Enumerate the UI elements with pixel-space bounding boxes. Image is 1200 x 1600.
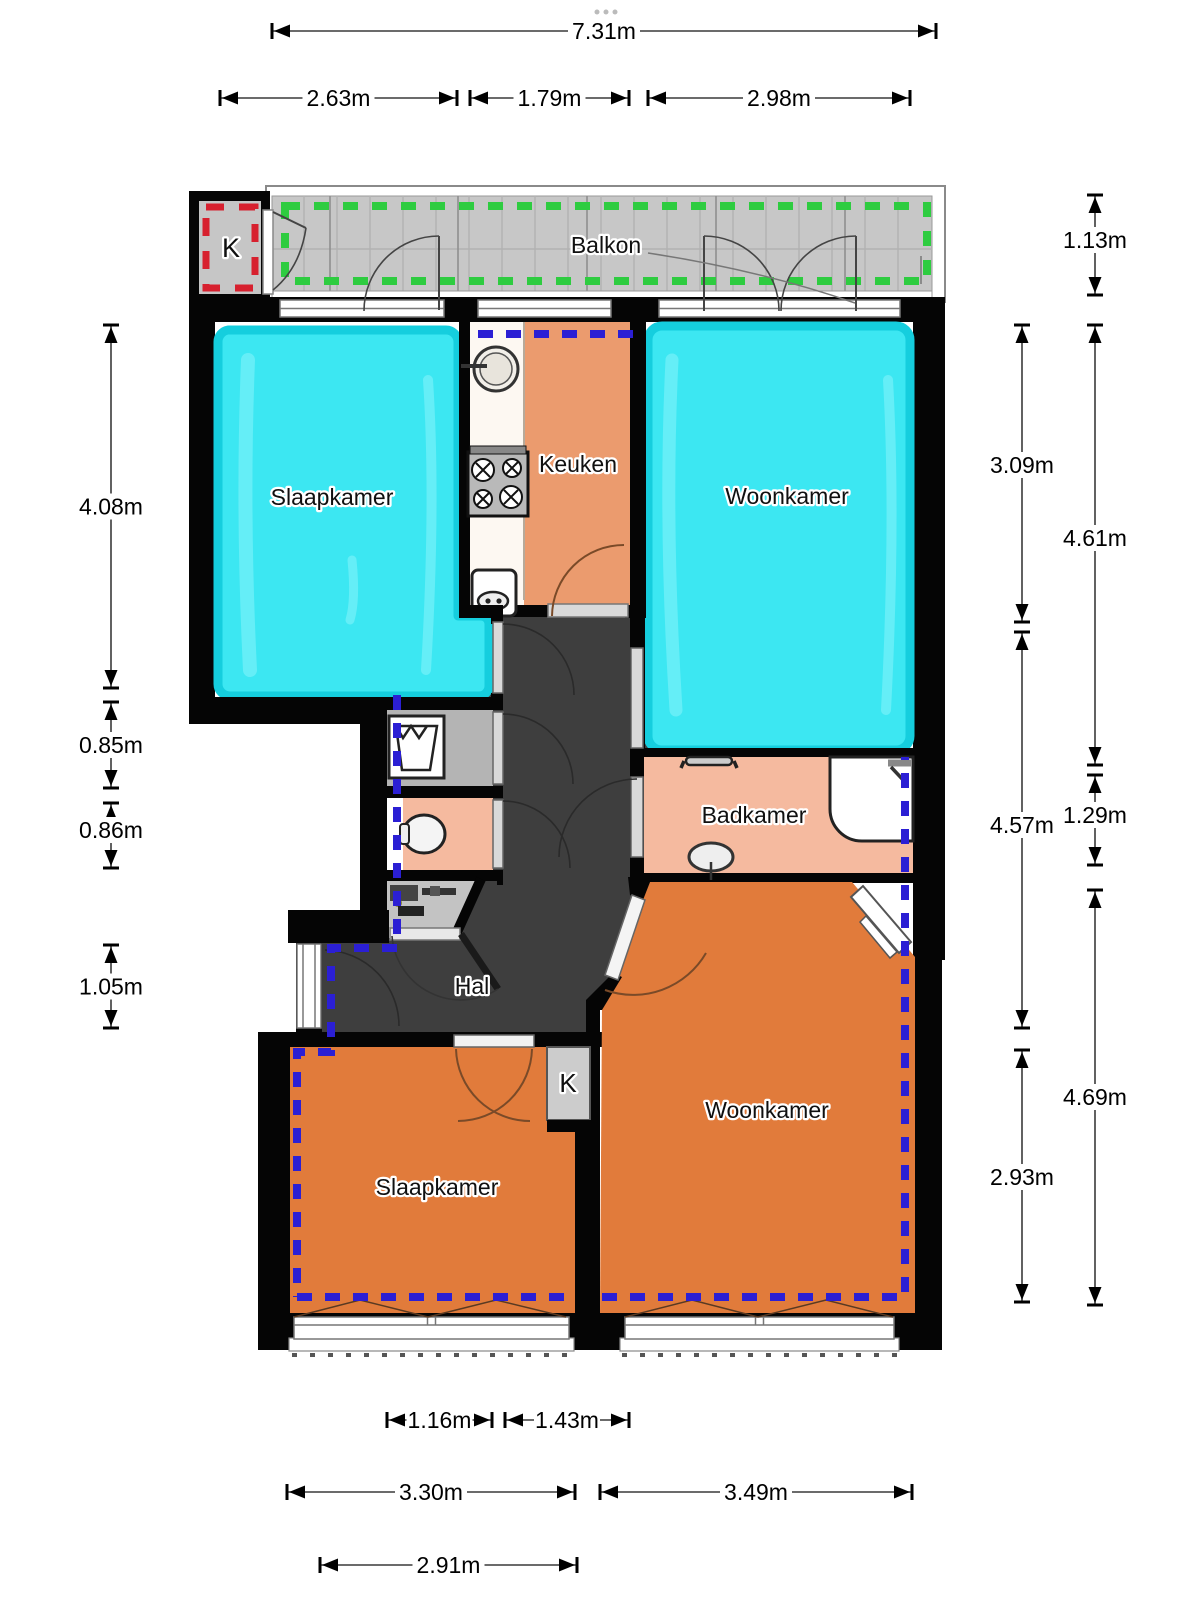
svg-text:0.85m: 0.85m xyxy=(79,732,143,758)
svg-text:Woonkamer: Woonkamer xyxy=(725,483,849,509)
svg-text:Slaapkamer: Slaapkamer xyxy=(376,1174,499,1200)
svg-text:1.05m: 1.05m xyxy=(79,974,143,1000)
svg-text:4.69m: 4.69m xyxy=(1063,1084,1127,1110)
svg-text:1.13m: 1.13m xyxy=(1063,227,1127,253)
svg-text:7.31m: 7.31m xyxy=(572,18,636,44)
svg-text:Hal: Hal xyxy=(455,973,490,999)
svg-text:2.93m: 2.93m xyxy=(990,1164,1054,1190)
svg-text:3.09m: 3.09m xyxy=(990,452,1054,478)
svg-text:Keuken: Keuken xyxy=(539,451,617,477)
svg-text:2.98m: 2.98m xyxy=(747,85,811,111)
svg-text:3.49m: 3.49m xyxy=(724,1479,788,1505)
svg-text:1.43m: 1.43m xyxy=(535,1407,599,1433)
svg-text:4.57m: 4.57m xyxy=(990,812,1054,838)
svg-text:1.29m: 1.29m xyxy=(1063,802,1127,828)
svg-text:2.91m: 2.91m xyxy=(417,1552,481,1578)
svg-text:Woonkamer: Woonkamer xyxy=(705,1097,829,1123)
svg-text:4.61m: 4.61m xyxy=(1063,525,1127,551)
svg-text:0.86m: 0.86m xyxy=(79,817,143,843)
svg-text:1.79m: 1.79m xyxy=(518,85,582,111)
svg-text:1.16m: 1.16m xyxy=(408,1407,472,1433)
svg-text:4.08m: 4.08m xyxy=(79,494,143,520)
svg-text:K: K xyxy=(222,233,240,263)
svg-text:3.30m: 3.30m xyxy=(399,1479,463,1505)
svg-text:Slaapkamer: Slaapkamer xyxy=(271,484,394,510)
svg-text:Badkamer: Badkamer xyxy=(702,802,807,828)
svg-text:2.63m: 2.63m xyxy=(307,85,371,111)
svg-text:K: K xyxy=(559,1068,577,1098)
svg-text:Balkon: Balkon xyxy=(571,232,641,258)
